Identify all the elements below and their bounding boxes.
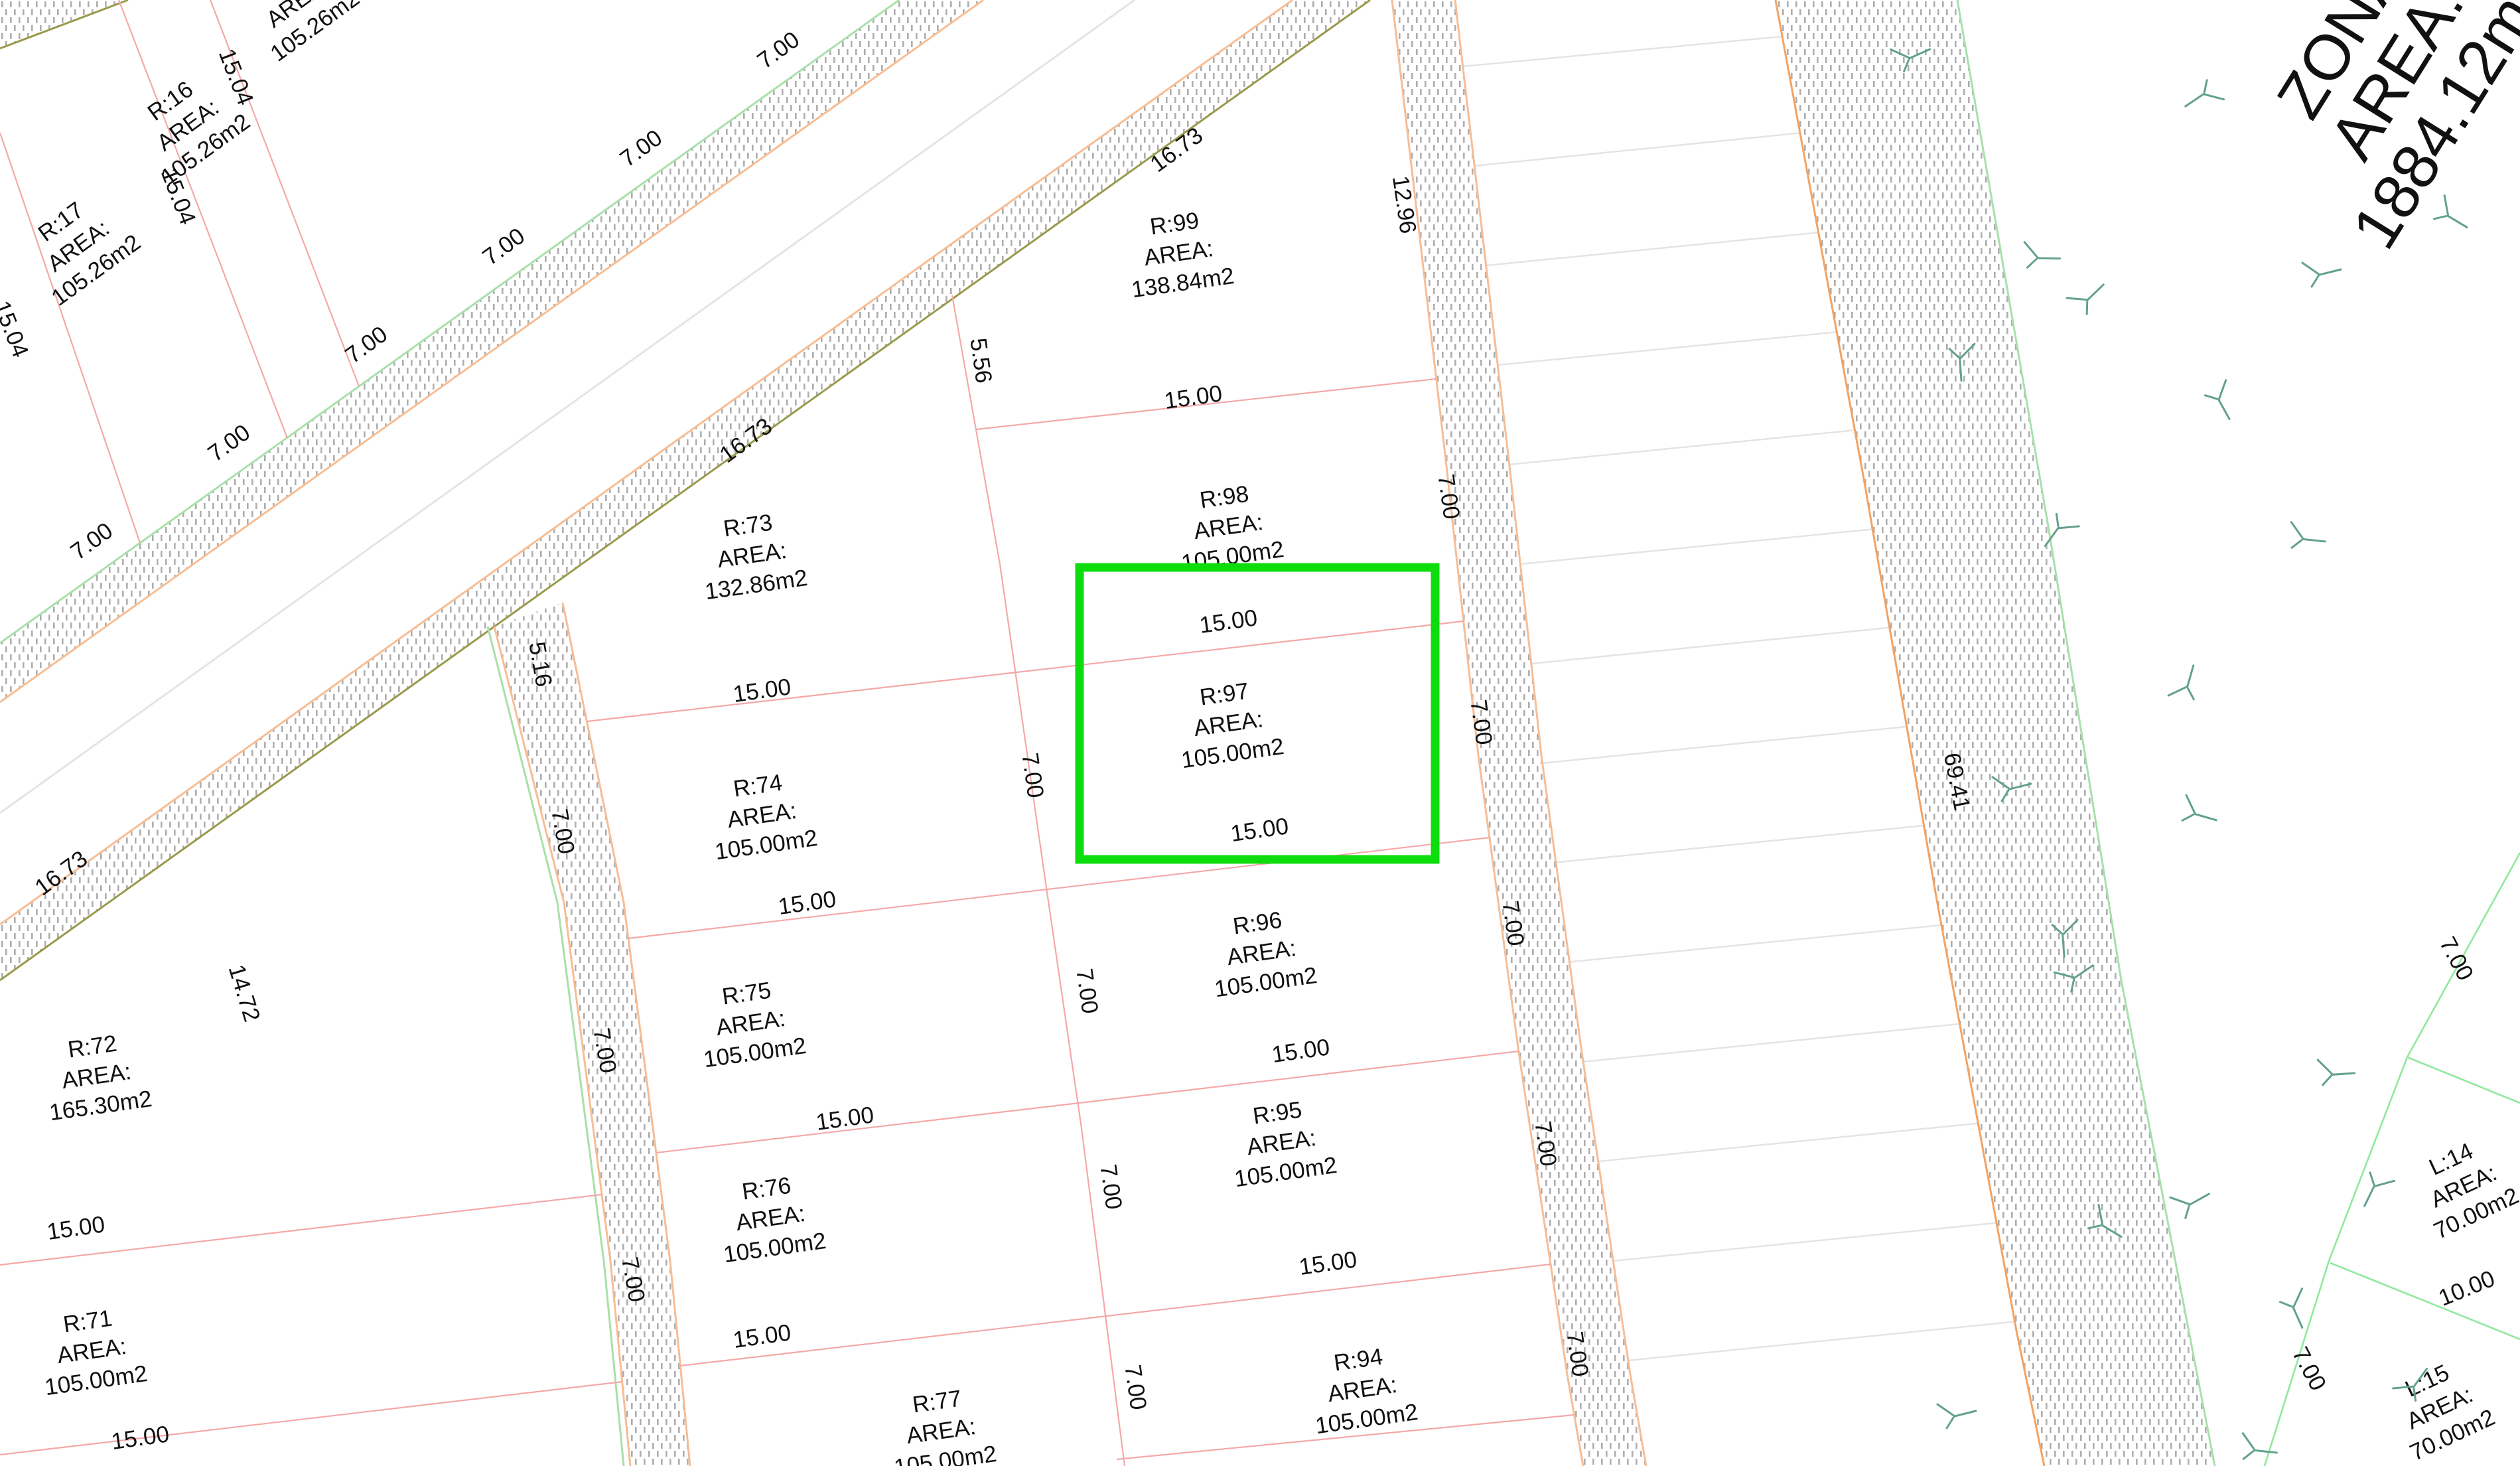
plan-canvas[interactable]: R:15AREA:105.26m2R:16AREA:105.26m2R:17AR… [0,0,2520,1466]
cad-viewport[interactable]: R:15AREA:105.26m2R:16AREA:105.26m2R:17AR… [0,0,2520,1466]
